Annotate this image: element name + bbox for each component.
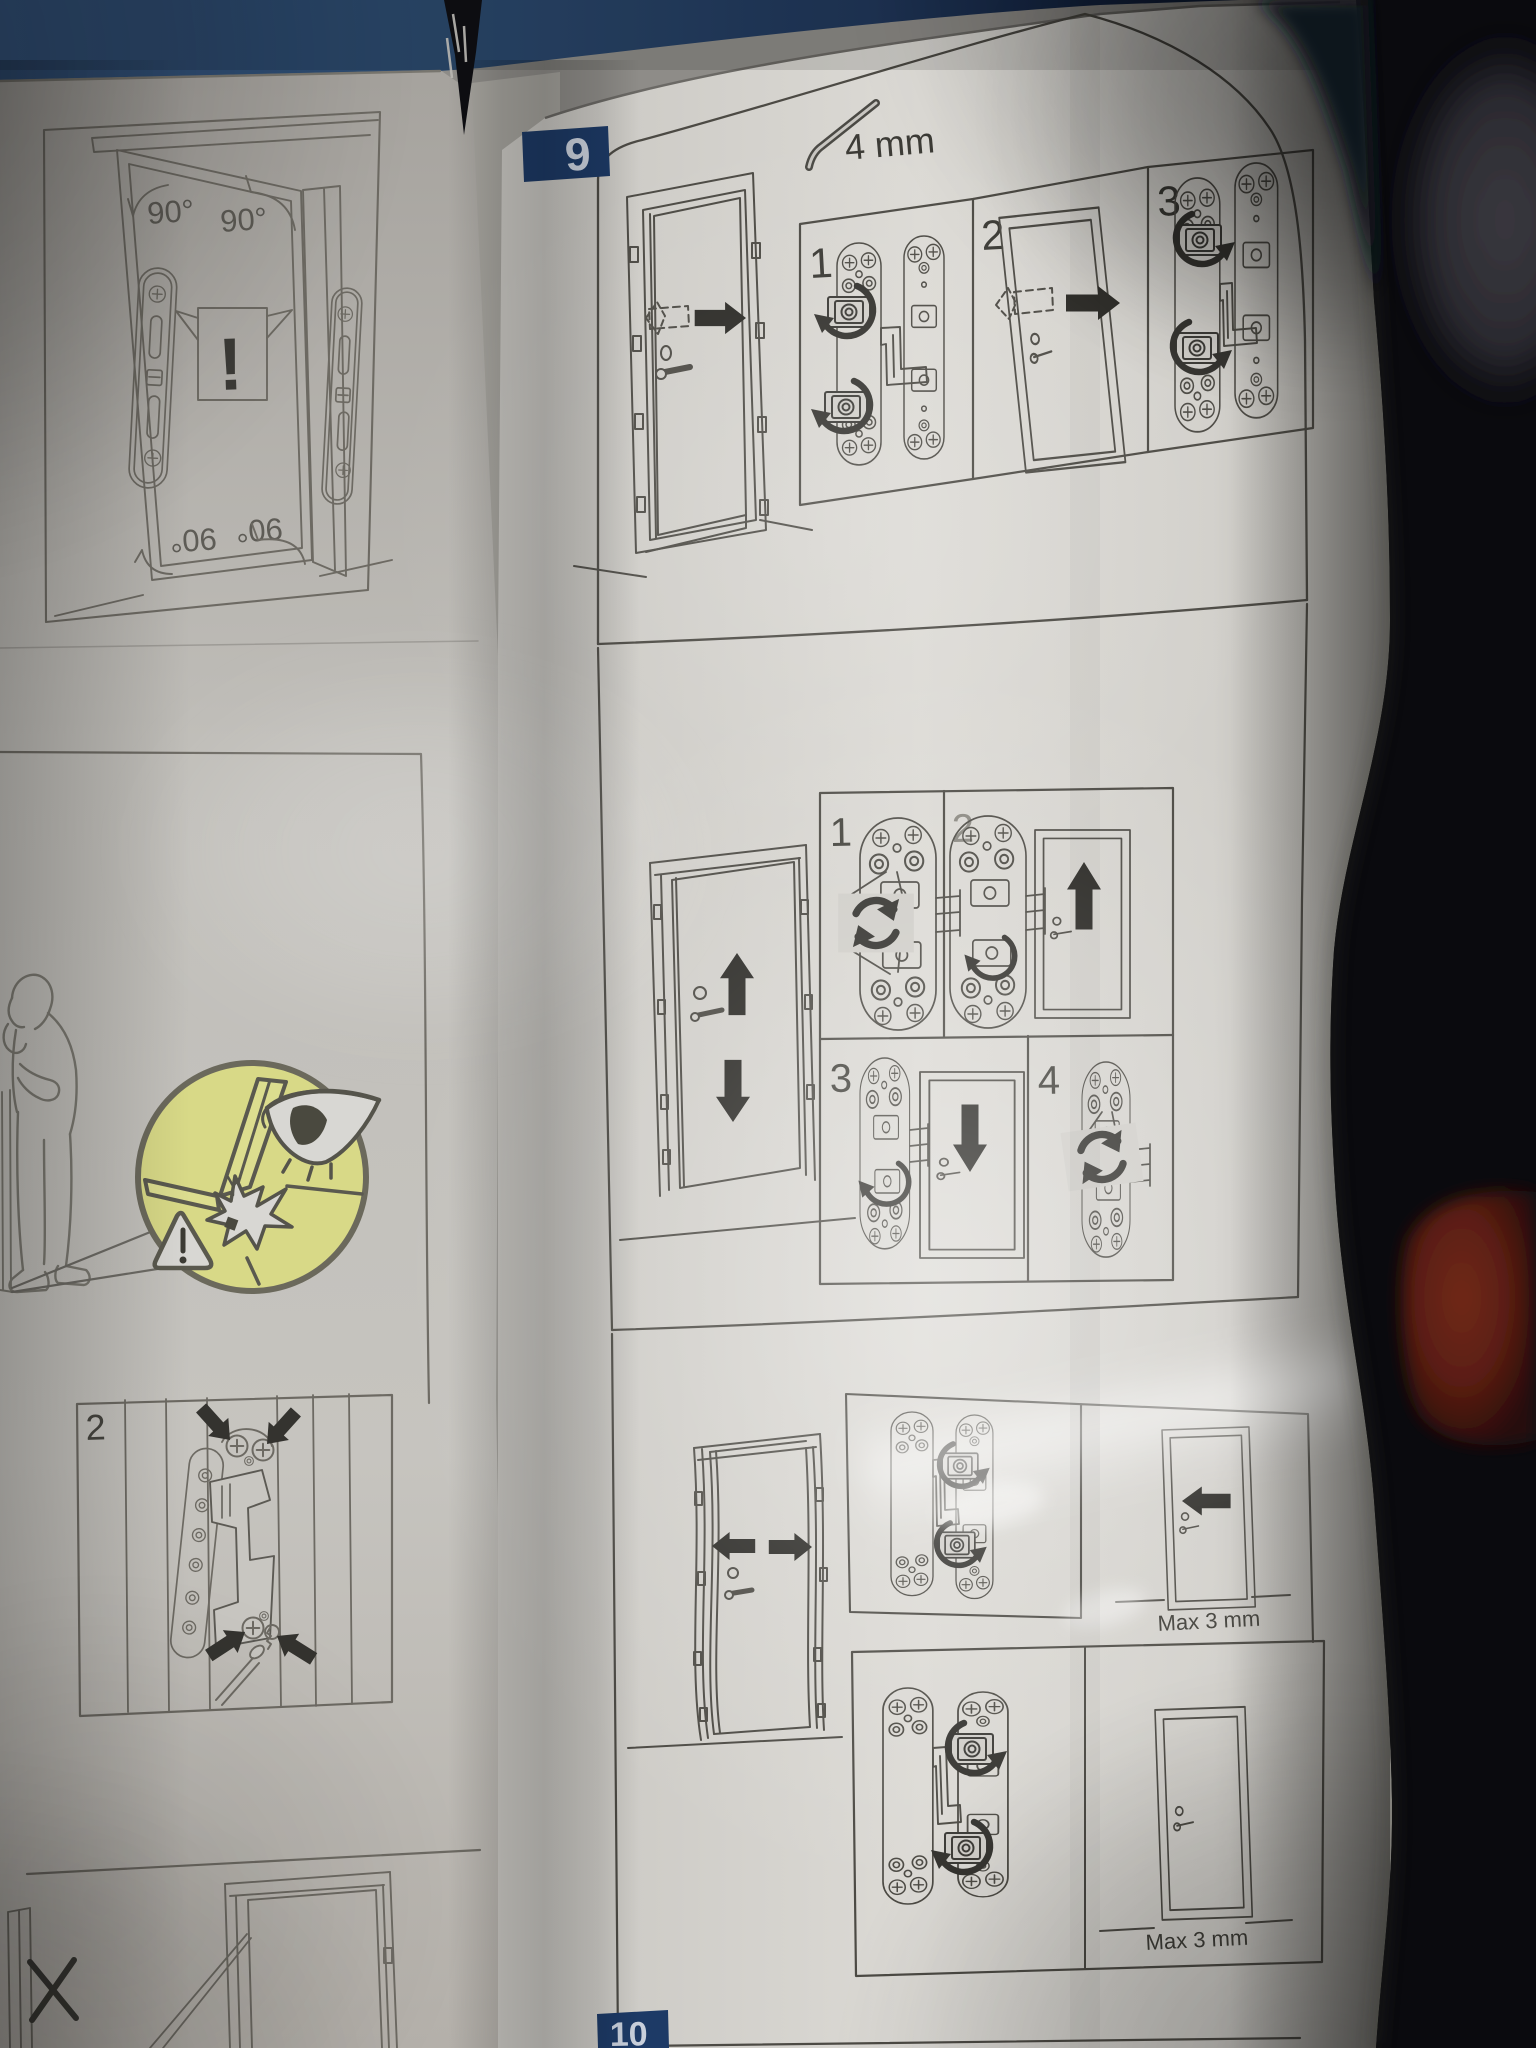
svg-text:90°: 90° xyxy=(235,511,284,549)
